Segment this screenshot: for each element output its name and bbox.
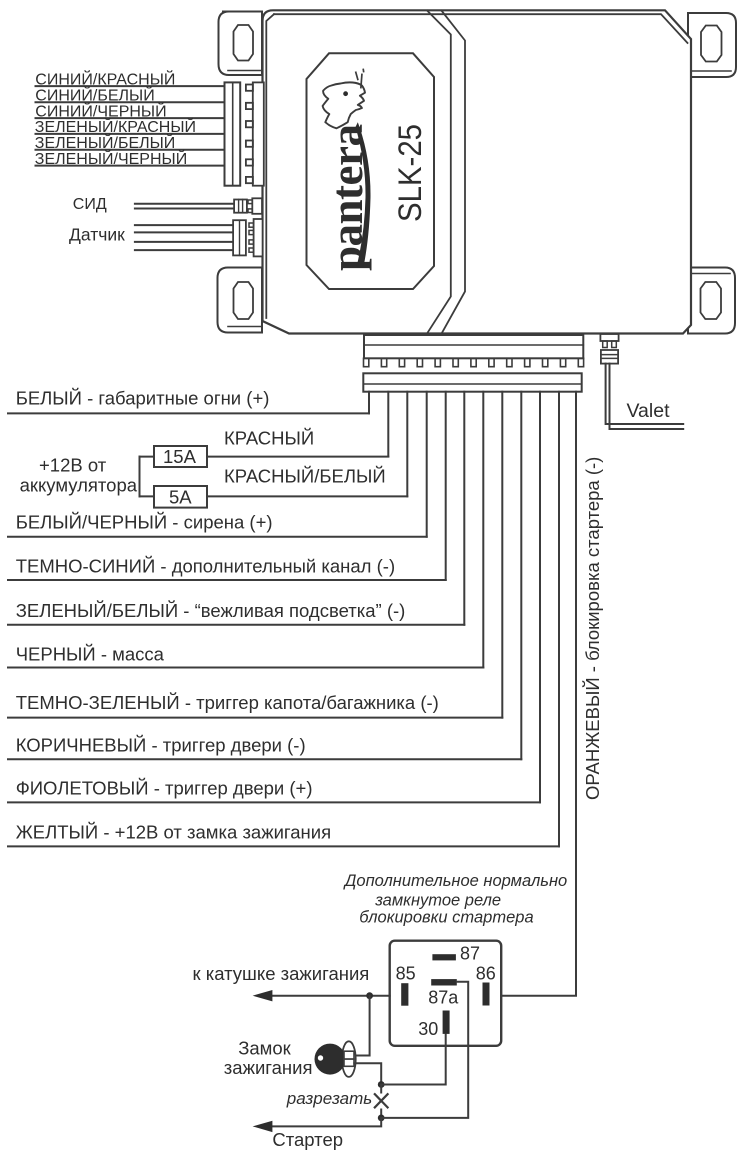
svg-text:ТЕМНО-ЗЕЛЕНЫЙ - триггер капота: ТЕМНО-ЗЕЛЕНЫЙ - триггер капота/багажника… [16,692,439,713]
svg-text:БЕЛЫЙ - габаритные огни (+): БЕЛЫЙ - габаритные огни (+) [16,388,270,409]
svg-text:85: 85 [396,964,416,984]
svg-text:ТЕМНО-СИНИЙ - дополнительный к: ТЕМНО-СИНИЙ - дополнительный канал (-) [16,556,395,577]
svg-text:блокировки стартера: блокировки стартера [359,909,533,927]
svg-text:ЗЕЛЕНЫЙ/БЕЛЫЙ - “вежливая подс: ЗЕЛЕНЫЙ/БЕЛЫЙ - “вежливая подсветка” (-) [16,600,406,621]
svg-text:КОРИЧНЕВЫЙ - триггер двери (-): КОРИЧНЕВЫЙ - триггер двери (-) [16,735,306,756]
svg-text:ОРАНЖЕВЫЙ - блокировка стартер: ОРАНЖЕВЫЙ - блокировка стартера (-) [582,457,603,800]
svg-text:ФИОЛЕТОВЫЙ - триггер двери (+): ФИОЛЕТОВЫЙ - триггер двери (+) [16,778,313,799]
svg-text:ЧЕРНЫЙ - масса: ЧЕРНЫЙ - масса [16,644,165,665]
svg-text:СИД: СИД [73,196,107,213]
svg-text:к катушке зажигания: к катушке зажигания [193,963,370,984]
svg-text:30: 30 [418,1019,438,1039]
svg-text:разрезать: разрезать [286,1089,372,1108]
svg-text:ЖЕЛТЫЙ - +12В от замка зажиган: ЖЕЛТЫЙ - +12В от замка зажигания [16,822,331,843]
svg-text:Дополнительное нормально: Дополнительное нормально [343,872,567,890]
svg-text:86: 86 [476,964,496,984]
svg-text:87: 87 [460,944,480,964]
svg-text:КРАСНЫЙ/БЕЛЫЙ: КРАСНЫЙ/БЕЛЫЙ [224,466,386,487]
svg-text:SLK-25: SLK-25 [392,124,428,222]
svg-text:замкнутое реле: замкнутое реле [374,892,501,910]
svg-text:+12В от: +12В от [39,455,107,476]
svg-text:Valet: Valet [627,400,671,422]
svg-text:87а: 87а [428,988,459,1008]
svg-text:Замок: Замок [238,1038,291,1059]
svg-text:Датчик: Датчик [69,225,125,245]
svg-text:БЕЛЫЙ/ЧЕРНЫЙ - сирена (+): БЕЛЫЙ/ЧЕРНЫЙ - сирена (+) [16,512,273,533]
svg-text:15А: 15А [163,446,197,467]
svg-text:зажигания: зажигания [224,1057,313,1078]
svg-text:КРАСНЫЙ: КРАСНЫЙ [224,428,314,449]
svg-text:Стартер: Стартер [272,1129,343,1150]
svg-text:5А: 5А [169,487,192,508]
svg-text:аккумулятора: аккумулятора [20,475,138,496]
